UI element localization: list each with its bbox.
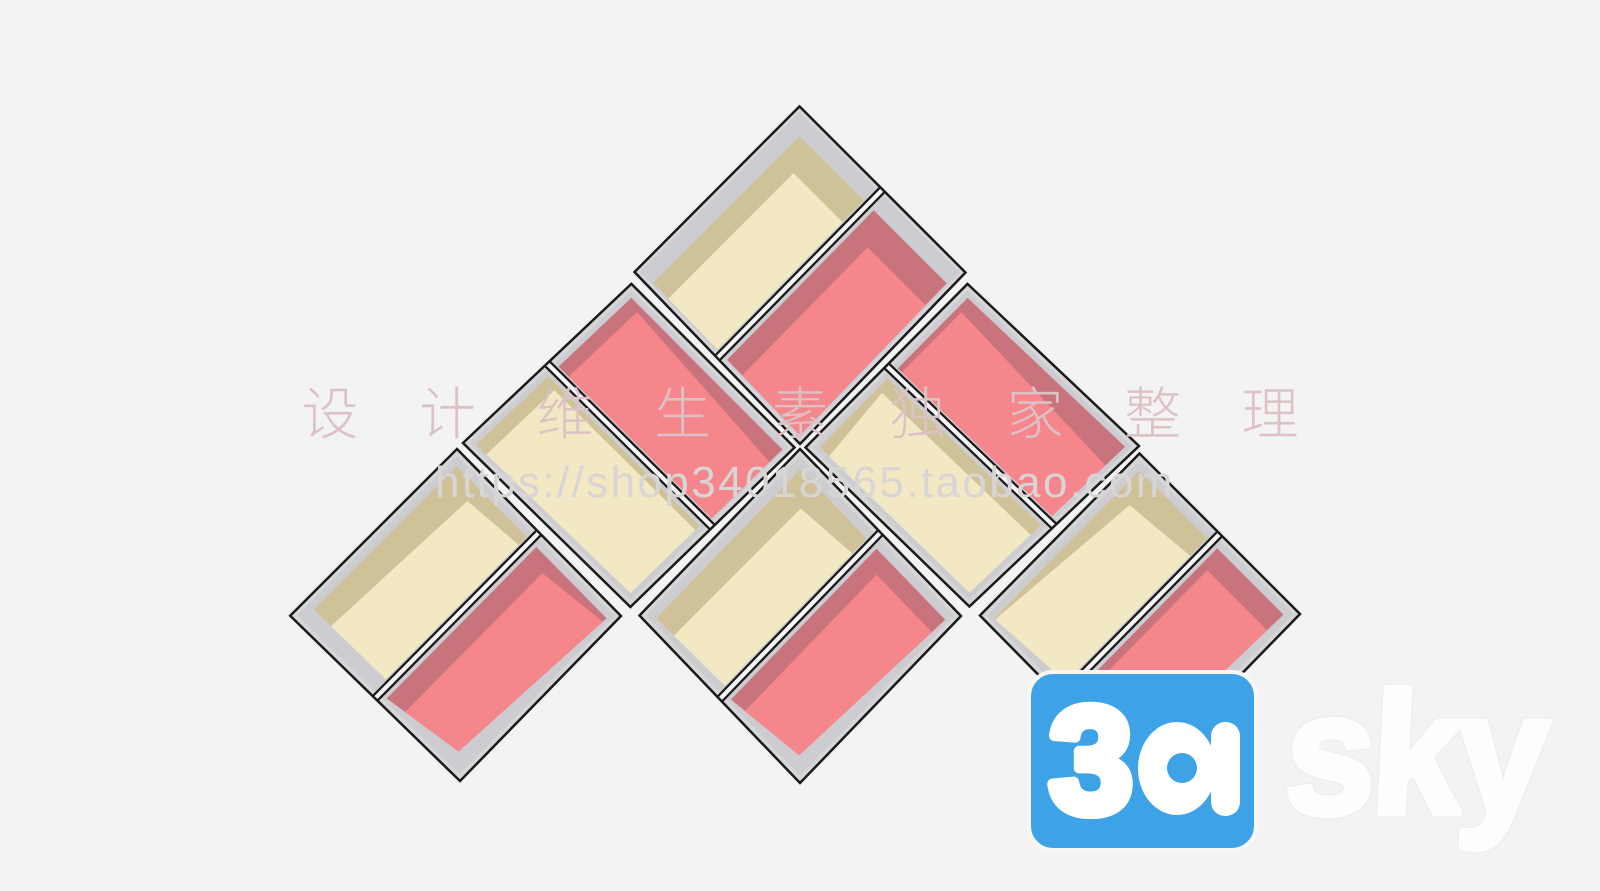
svg-text:sky: sky <box>1281 659 1552 851</box>
svg-text:https://shop34018565.taobao.co: https://shop34018565.taobao.com <box>435 458 1175 507</box>
svg-text:3: 3 <box>1049 676 1132 844</box>
